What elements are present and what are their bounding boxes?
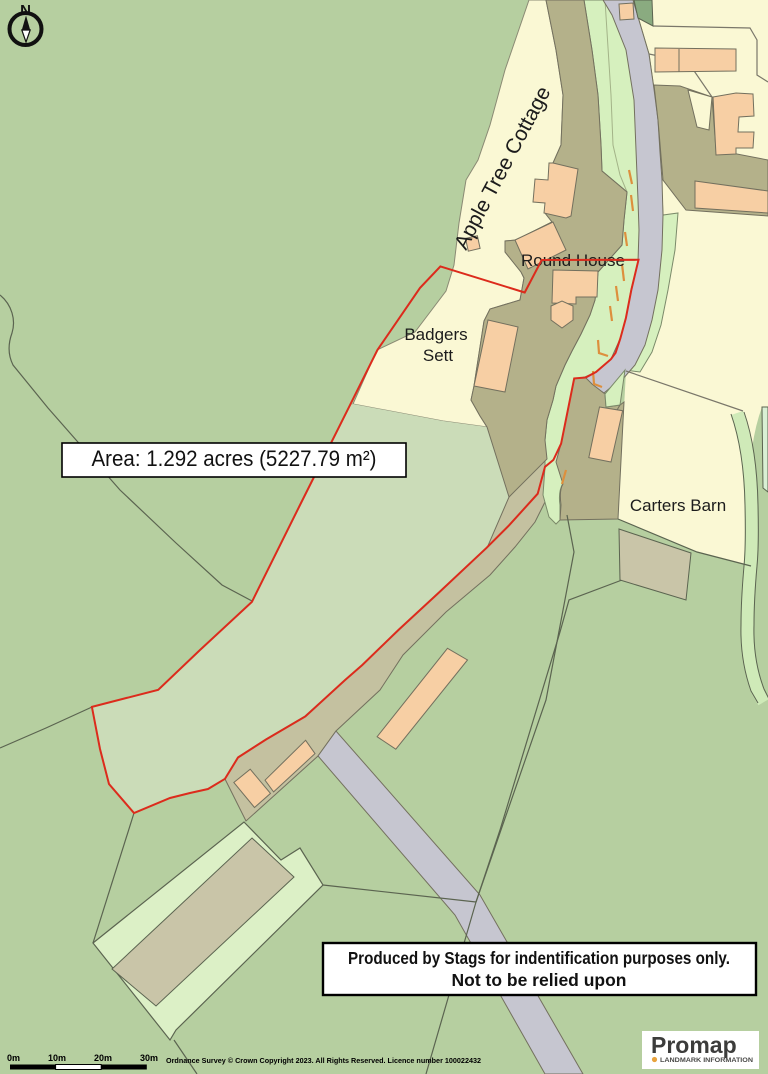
svg-text:Carters Barn: Carters Barn xyxy=(630,496,726,515)
svg-text:Produced by Stags for indentif: Produced by Stags for indentification pu… xyxy=(348,948,730,968)
svg-text:20m: 20m xyxy=(94,1053,112,1063)
svg-text:Not to be relied upon: Not to be relied upon xyxy=(452,970,627,990)
svg-text:Badgers: Badgers xyxy=(404,325,467,344)
svg-text:10m: 10m xyxy=(48,1053,66,1063)
svg-text:N: N xyxy=(20,2,31,19)
svg-text:30m: 30m xyxy=(140,1053,158,1063)
svg-text:Area: 1.292 acres (5227.79 m²): Area: 1.292 acres (5227.79 m²) xyxy=(92,446,377,471)
svg-text:LANDMARK INFORMATION: LANDMARK INFORMATION xyxy=(660,1057,753,1064)
svg-text:Ordnance Survey © Crown Copyri: Ordnance Survey © Crown Copyright 2023. … xyxy=(166,1056,481,1065)
svg-text:0m: 0m xyxy=(7,1053,20,1063)
svg-text:Promap: Promap xyxy=(651,1032,737,1058)
svg-text:Sett: Sett xyxy=(423,346,454,365)
